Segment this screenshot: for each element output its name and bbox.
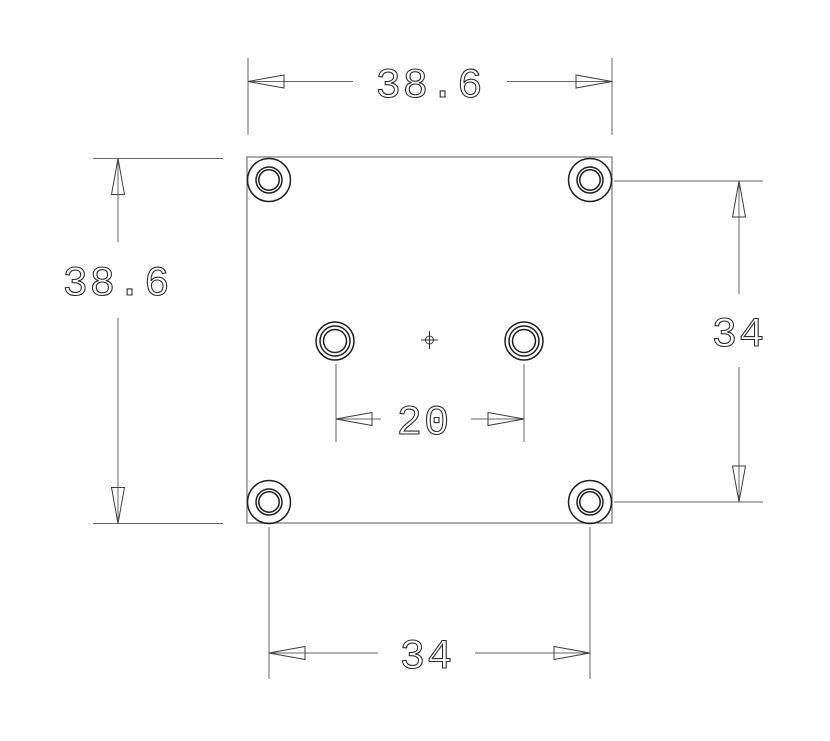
hole-outer-circle <box>316 322 354 360</box>
center-hole-left <box>316 322 354 360</box>
corner-hole-top-right <box>569 159 612 202</box>
hole-circle <box>256 489 282 515</box>
counterbore-circle <box>248 159 291 202</box>
hole-circle <box>509 326 539 356</box>
part-view <box>247 157 612 524</box>
technical-drawing: 38.6 38.6 34 34 20 <box>0 0 830 741</box>
dimension-overall-height: 38.6 <box>63 159 223 524</box>
center-mark <box>421 331 438 349</box>
hole-inner-circle <box>580 492 600 512</box>
counterbore-circle <box>248 481 291 524</box>
hole-circle <box>577 167 603 193</box>
corner-hole-top-left <box>248 159 291 202</box>
drawing-canvas: 38.6 38.6 34 34 20 <box>0 0 830 741</box>
hole-circle <box>256 167 282 193</box>
hole-inner-circle <box>513 330 536 353</box>
counterbore-circle <box>569 481 612 524</box>
hole-inner-circle <box>324 330 347 353</box>
dimension-hole-vertical-spacing: 34 <box>614 181 766 502</box>
dimension-label: 34 <box>712 311 766 359</box>
hole-inner-circle <box>580 170 600 190</box>
corner-hole-bottom-left <box>248 481 291 524</box>
center-hole-right <box>505 322 543 360</box>
dimension-overall-width: 38.6 <box>248 58 612 135</box>
hole-inner-circle <box>259 170 279 190</box>
dimension-center-hole-spacing: 20 <box>336 364 524 447</box>
hole-outer-circle <box>505 322 543 360</box>
dimension-label: 38.6 <box>376 62 485 110</box>
counterbore-circle <box>569 159 612 202</box>
dimension-label: 20 <box>397 399 451 447</box>
hole-circle <box>577 489 603 515</box>
dimension-label: 34 <box>400 633 454 681</box>
corner-hole-bottom-right <box>569 481 612 524</box>
hole-circle <box>320 326 350 356</box>
dimension-label: 38.6 <box>63 260 172 308</box>
dimension-hole-horizontal-spacing: 34 <box>269 527 590 681</box>
hole-inner-circle <box>259 492 279 512</box>
